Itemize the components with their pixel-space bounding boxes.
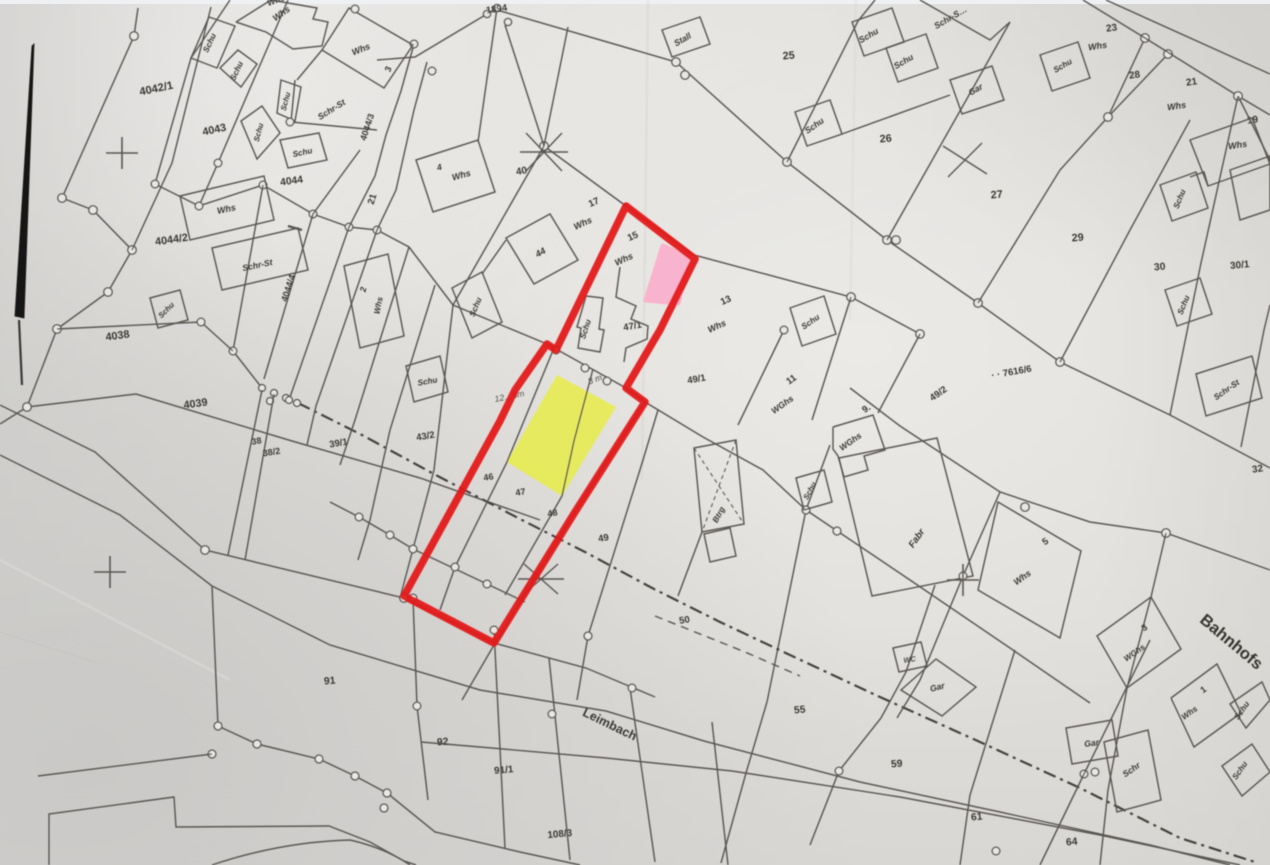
svg-text:26: 26 — [879, 133, 892, 146]
svg-text:92: 92 — [437, 737, 450, 749]
svg-text:55: 55 — [794, 705, 807, 717]
svg-text:30/1: 30/1 — [1230, 259, 1251, 272]
svg-text:64: 64 — [1066, 837, 1079, 849]
svg-text:27: 27 — [990, 189, 1003, 202]
svg-text:91/1: 91/1 — [494, 764, 515, 777]
svg-text:25: 25 — [782, 50, 795, 63]
svg-text:38: 38 — [251, 435, 263, 447]
svg-text:59: 59 — [891, 759, 904, 771]
svg-text:61: 61 — [971, 812, 984, 824]
svg-text:47: 47 — [515, 486, 527, 498]
svg-text:108/3: 108/3 — [547, 828, 573, 841]
svg-text:50: 50 — [678, 614, 690, 627]
svg-text:21: 21 — [1185, 76, 1198, 88]
svg-text:30: 30 — [1154, 262, 1167, 274]
svg-text:29: 29 — [1071, 232, 1084, 245]
svg-text:49: 49 — [597, 532, 609, 545]
svg-text:23: 23 — [1105, 22, 1118, 34]
svg-text:WC: WC — [903, 654, 917, 665]
svg-text:32: 32 — [1251, 463, 1264, 475]
svg-text:46: 46 — [483, 471, 495, 483]
svg-text:48: 48 — [547, 507, 559, 519]
svg-text:28: 28 — [1128, 69, 1141, 81]
svg-text:91: 91 — [324, 676, 337, 688]
